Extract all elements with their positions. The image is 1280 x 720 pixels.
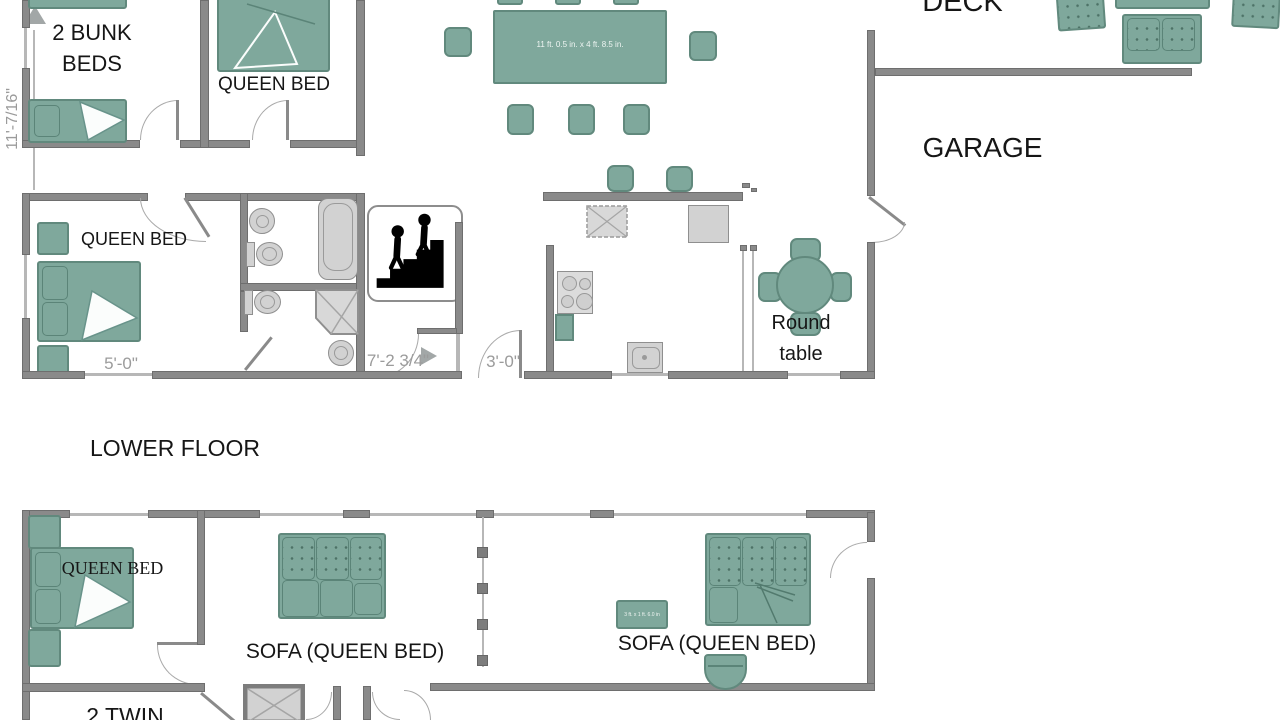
wall (22, 193, 30, 255)
bar-stool (666, 166, 693, 192)
dimension-hallway: 7'-2 3/4" (358, 351, 438, 371)
burner (576, 293, 593, 310)
door-hinge (742, 183, 750, 188)
door-arc (252, 100, 288, 140)
wall (476, 510, 494, 518)
corner-shower (315, 289, 359, 335)
wall (590, 510, 614, 518)
window (24, 28, 27, 68)
dining-chair (555, 0, 581, 5)
wall (867, 242, 875, 378)
railing-post (477, 619, 488, 630)
room-label-bunk: 2 BUNK BEDS (32, 18, 152, 80)
wall (200, 0, 209, 148)
area-label-deck: DECK (905, 0, 1020, 23)
dining-chair (613, 0, 639, 5)
door-arc (372, 692, 400, 720)
round-table (776, 256, 834, 314)
outdoor-table (1115, 0, 1210, 9)
wall (867, 578, 875, 690)
dining-chair (444, 27, 472, 57)
wall (290, 140, 357, 148)
dining-chair (623, 104, 650, 135)
sliding-door (742, 250, 744, 372)
kitchen-island (688, 205, 729, 243)
wall (524, 371, 612, 379)
room-label-queen-lower: QUEEN BED (50, 556, 175, 581)
stairs-sign (367, 205, 463, 302)
sink-bowl (256, 215, 269, 228)
cushion (1162, 18, 1195, 51)
seat-cushion (282, 580, 319, 617)
wall (750, 245, 757, 251)
outdoor-armchair (1231, 0, 1280, 29)
sofa-bed (705, 533, 811, 626)
cushion (282, 537, 315, 580)
railing-post (477, 583, 488, 594)
wall (197, 510, 205, 645)
room-label-garage: GARAGE (915, 128, 1050, 167)
toilet-tank (246, 242, 255, 267)
bar-stool (607, 165, 634, 192)
kitchen-cabinet (555, 314, 574, 341)
door-arc (404, 690, 431, 720)
floor-plan: 11'-7/16" 2 BUNK BEDS QUEEN BED 11 ft. 0… (0, 0, 1280, 720)
door-arc (140, 100, 178, 140)
dining-chair (568, 104, 595, 135)
queen-bed (217, 0, 330, 72)
railing-post (477, 547, 488, 558)
dimension-left-height: 11'-7/16" (4, 44, 22, 194)
wall (22, 193, 148, 201)
toilet-seat (260, 295, 275, 309)
stove (557, 271, 593, 314)
wall (546, 245, 554, 378)
dining-chair (689, 31, 717, 61)
section-label-lower-floor: LOWER FLOOR (85, 432, 265, 464)
cushion (316, 537, 349, 580)
stove-band (708, 665, 743, 667)
toilet-bowl (256, 242, 283, 266)
wall (22, 318, 30, 379)
room-label-twin-partial: 2 TWIN (65, 700, 185, 720)
stairs-up-icon (369, 207, 457, 296)
railing-post (477, 655, 488, 666)
door-arc (306, 692, 332, 720)
door-leaf (286, 100, 289, 140)
bench: 3 ft. x 1 ft. 6.0 in (616, 600, 668, 629)
blanket-fold (37, 261, 141, 342)
sink-bowl (334, 346, 348, 360)
wall (867, 512, 875, 542)
wall (343, 510, 370, 518)
wall (180, 140, 250, 148)
door-arc (157, 645, 197, 685)
outdoor-armchair (1056, 0, 1106, 32)
shower (243, 684, 305, 720)
window (612, 373, 668, 376)
seat-cushion (320, 580, 353, 617)
wall (22, 371, 85, 379)
wall (740, 245, 747, 251)
dining-chair (507, 104, 534, 135)
cushion (350, 537, 382, 580)
wall (430, 683, 875, 691)
door-arc (830, 542, 867, 578)
bunk-bed (28, 99, 127, 143)
wall (363, 686, 371, 720)
nightstand (37, 222, 69, 255)
window (788, 373, 840, 376)
wall (875, 68, 1192, 76)
sofa-bed (278, 533, 386, 619)
nightstand (28, 629, 61, 667)
dimension-door: 3'-0" (482, 352, 524, 372)
round-table-label: Round table (755, 308, 847, 370)
door-hinge (751, 188, 757, 192)
bathtub (318, 198, 358, 280)
toilet-seat (262, 247, 277, 261)
nightstand (28, 515, 61, 549)
wall (455, 222, 463, 334)
wall (333, 686, 341, 720)
wall (356, 0, 365, 156)
window (24, 255, 27, 318)
dining-table-size: 11 ft. 0.5 in. x 4 ft. 8.5 in. (495, 40, 665, 49)
blanket-fold (705, 533, 811, 626)
door-leaf (200, 692, 236, 720)
folding-table (586, 205, 628, 238)
kitchen-sink (627, 342, 663, 373)
bathroom-sink (249, 208, 275, 234)
wall (417, 328, 457, 334)
dining-chair (497, 0, 523, 5)
toilet-tank (244, 290, 253, 315)
door-leaf (244, 336, 273, 371)
blanket-fold (217, 0, 330, 72)
queen-bed (37, 261, 141, 342)
room-label-queen-middle: QUEEN BED (78, 227, 190, 252)
burner (579, 278, 591, 290)
dining-table: 11 ft. 0.5 in. x 4 ft. 8.5 in. (493, 10, 667, 84)
blanket-fold (28, 99, 127, 143)
toilet-bowl (254, 290, 281, 314)
dimension-room-width: 5'-0" (95, 354, 147, 374)
tub-basin (323, 203, 353, 271)
seat-cushion (354, 583, 382, 615)
wall (152, 371, 462, 379)
wall (806, 510, 875, 518)
wall (668, 371, 788, 379)
wall (840, 371, 875, 379)
cushion (1127, 18, 1160, 51)
bench-size: 3 ft. x 1 ft. 6.0 in (618, 612, 666, 618)
bunk-bed (28, 0, 127, 9)
sofa-label-left: SOFA (QUEEN BED) (235, 637, 455, 666)
outdoor-loveseat (1122, 14, 1202, 64)
window (85, 373, 152, 376)
wall (543, 192, 743, 201)
bathroom-sink (328, 340, 354, 366)
faucet (642, 355, 647, 360)
burner (561, 295, 574, 308)
wall (867, 30, 875, 196)
door-leaf (176, 100, 179, 140)
sliding-door (752, 250, 754, 372)
burner (562, 276, 577, 291)
door-arc (872, 222, 905, 243)
room-label-queen-upper: QUEEN BED (218, 72, 330, 99)
wall (22, 683, 205, 692)
